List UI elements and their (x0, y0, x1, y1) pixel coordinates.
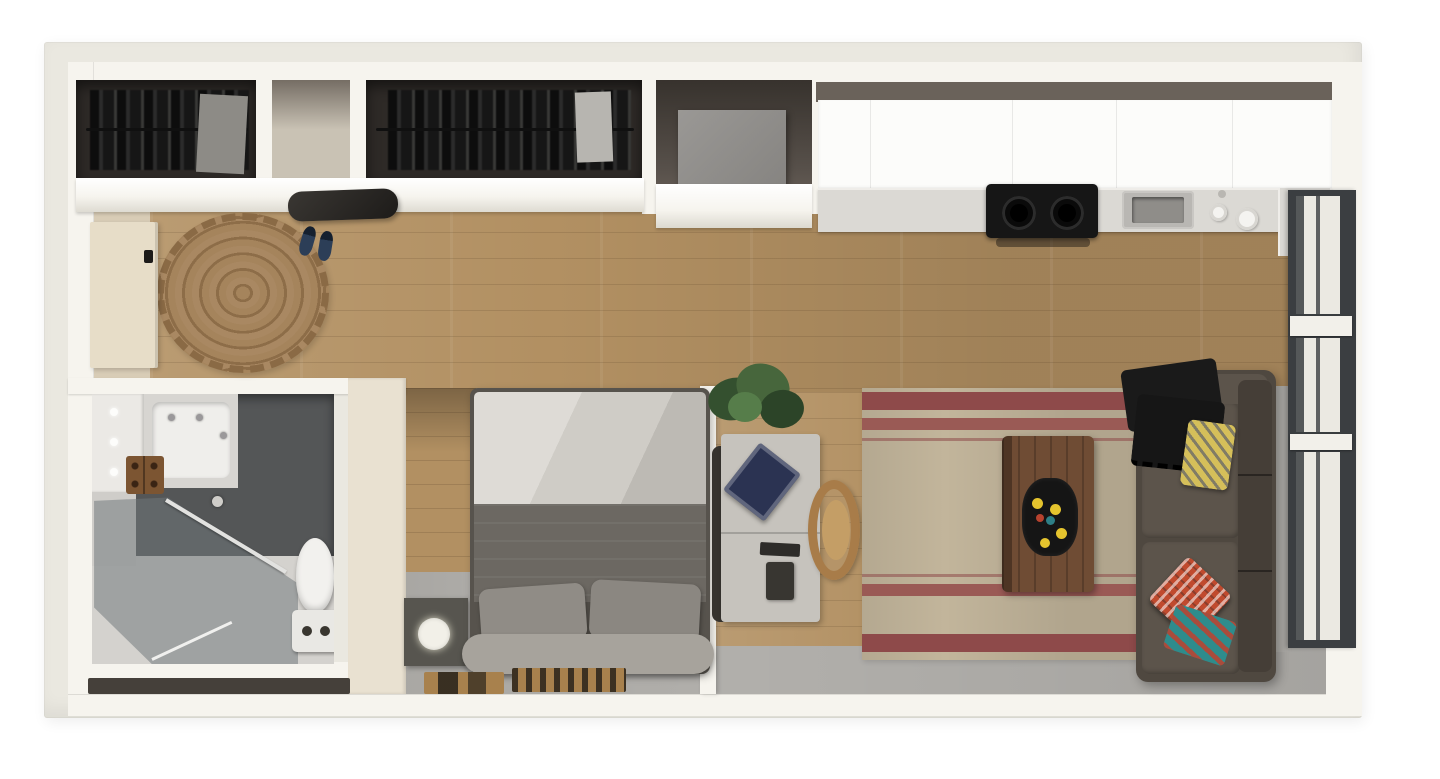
door-handle (144, 250, 153, 263)
counter-dish (1210, 204, 1227, 221)
sofa-back-cushions (1238, 380, 1272, 672)
empty-closet-cubby (272, 80, 350, 190)
rug-stripe (862, 634, 1138, 652)
toilet-tank-button (320, 626, 330, 636)
cooktop-burner (1002, 196, 1036, 230)
fruit (1046, 516, 1055, 525)
window-sill (1290, 434, 1352, 450)
toilet-bowl (296, 538, 334, 612)
wood-panel-wall (404, 388, 476, 572)
window-pane (1296, 338, 1340, 432)
closet-divider-wall-1 (256, 78, 272, 182)
vanity-faucet (168, 414, 175, 421)
appliance-box (678, 110, 786, 194)
closet-divider-wall-3 (642, 62, 656, 214)
window-pane (1296, 196, 1340, 314)
closet-divider-wall-2 (350, 78, 366, 182)
vanity-light (110, 438, 118, 446)
niche-lower-cabinet (656, 184, 812, 228)
yellow-accent-pillow (1180, 419, 1237, 491)
window-sill (1290, 316, 1352, 336)
counter-dish (1236, 208, 1258, 230)
wall-south (68, 694, 1346, 716)
striped-area-rug (862, 388, 1138, 660)
floor-mat (512, 668, 626, 692)
white-garment (575, 91, 613, 162)
vanity-light (110, 408, 118, 416)
window-pane (1296, 452, 1340, 640)
bathroom-wall-east (348, 378, 406, 694)
sink-faucet (1218, 190, 1226, 198)
entry-door (90, 222, 158, 368)
desk-accessory (760, 542, 801, 557)
fruit (1032, 498, 1043, 509)
fruit (1050, 504, 1061, 515)
cooktop-shadow-mat (996, 238, 1090, 247)
floor-plan-canvas (0, 0, 1440, 779)
rug-stripe (862, 574, 1138, 577)
kitchen-wall-shadow (816, 82, 1332, 102)
rug-stripe (862, 584, 1138, 596)
desk-accessory (766, 562, 794, 600)
potted-plant (728, 392, 762, 422)
bathroom-window-band (88, 678, 350, 694)
rug-stripe (862, 392, 1138, 410)
toilet-tank-button (302, 626, 312, 636)
gray-garment (196, 94, 248, 174)
wood-soap-tray (126, 456, 164, 494)
bed-sheet (474, 392, 706, 504)
floor-mat (424, 672, 504, 694)
bathroom (92, 394, 334, 664)
fruit (1056, 528, 1067, 539)
cooktop-burner (1050, 196, 1084, 230)
wall-console (288, 188, 399, 222)
rug-stripe (862, 438, 1138, 441)
chair-seat (822, 500, 850, 560)
rug-stripe (862, 418, 1138, 430)
round-lamp (418, 618, 450, 650)
fruit (1040, 538, 1050, 548)
kitchen-upper-cabinets (818, 100, 1332, 190)
sink-basin (1132, 197, 1184, 223)
bathroom-wall-south (68, 662, 350, 678)
vanity-faucet (196, 414, 203, 421)
vanity-faucet (220, 432, 227, 439)
vanity-light (110, 468, 118, 476)
shower-head (212, 496, 223, 507)
fruit (1036, 514, 1044, 522)
